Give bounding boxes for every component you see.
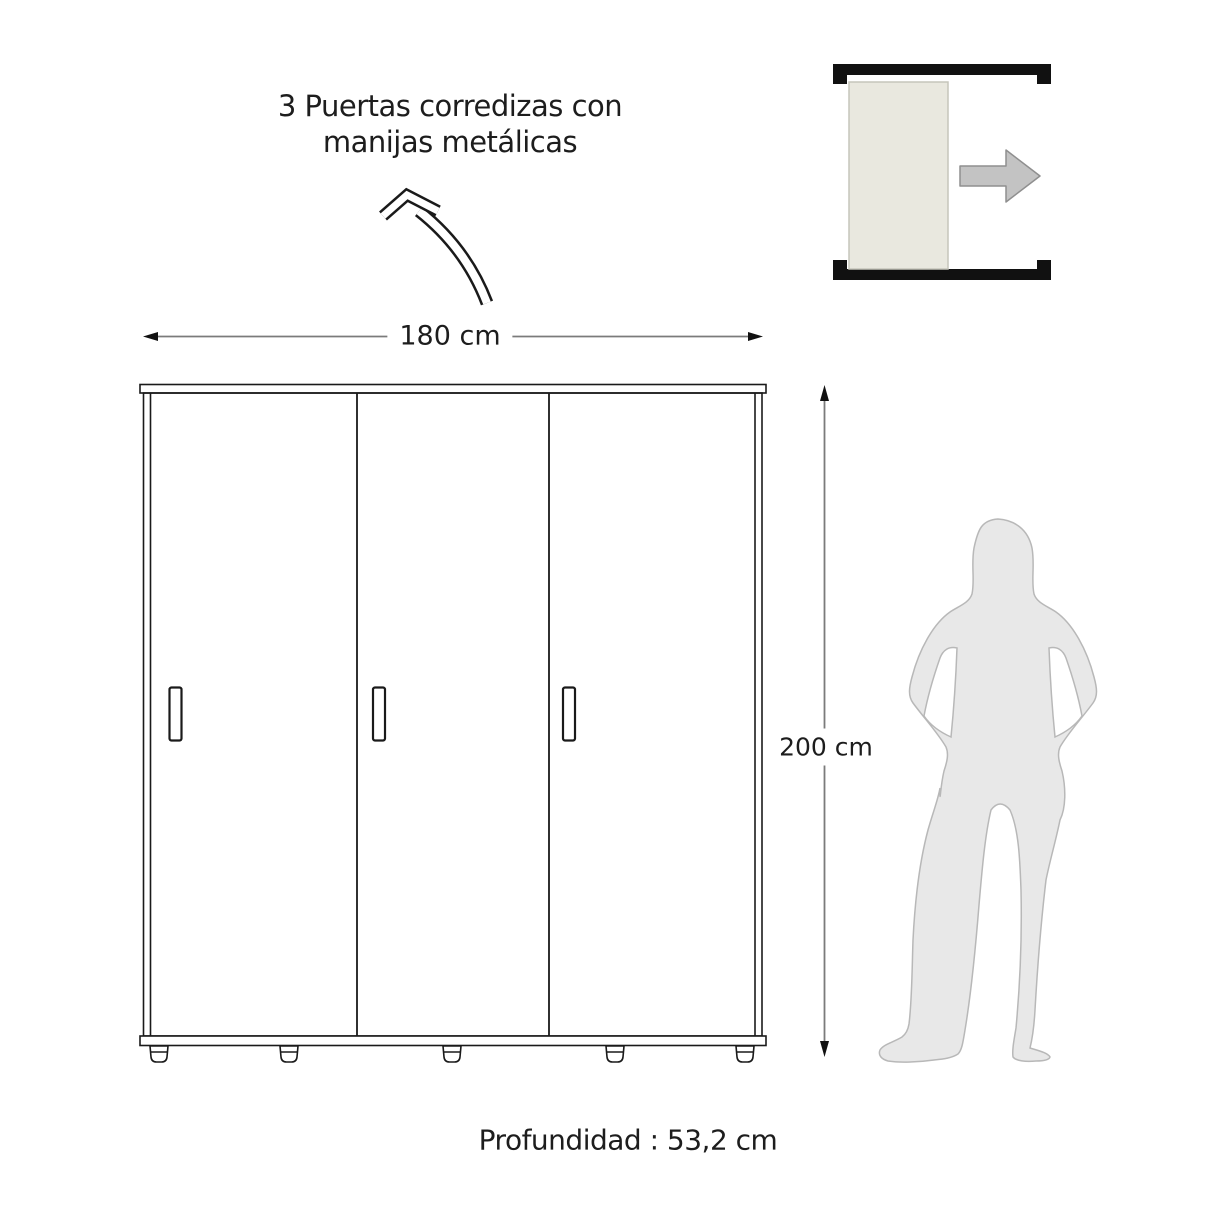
top-rail-bracket: [833, 64, 1051, 84]
height-dimension-label: 200 cm: [771, 729, 881, 766]
feature-annotation-line1: 3 Puertas corredizas con: [278, 88, 622, 124]
diagram-artwork: [0, 0, 1214, 1214]
slide-right-arrow-icon: [960, 150, 1040, 202]
depth-dimension-label: Profundidad : 53,2 cm: [479, 1124, 778, 1157]
wardrobe-foot-3: [443, 1046, 461, 1062]
arrowhead-up: [820, 385, 829, 401]
wardrobe-foot-5: [736, 1046, 754, 1062]
wardrobe-foot-2: [280, 1046, 298, 1062]
arrowhead-left: [143, 332, 158, 341]
height-dimension: [820, 385, 829, 1057]
wardrobe-body-outline: [144, 393, 763, 1036]
person-silhouette: [879, 519, 1096, 1062]
feature-annotation: 3 Puertas corredizas con manijas metálic…: [278, 88, 622, 161]
door-handle-3: [563, 688, 575, 741]
width-dimension-label: 180 cm: [387, 321, 512, 352]
wardrobe-drawing: [140, 385, 766, 1063]
curved-arrow-icon: [383, 195, 487, 303]
arrowhead-down: [820, 1041, 829, 1057]
slide-direction-diagram: [833, 64, 1051, 280]
wardrobe-foot-4: [606, 1046, 624, 1062]
wardrobe-top-panel: [140, 385, 766, 394]
door-handle-1: [170, 688, 182, 741]
wardrobe-foot-1: [150, 1046, 168, 1062]
feature-annotation-line2: manijas metálicas: [278, 124, 622, 160]
product-dimension-diagram: 3 Puertas corredizas con manijas metálic…: [0, 0, 1214, 1214]
sliding-door-panel: [849, 82, 948, 269]
arrowhead-right: [748, 332, 763, 341]
door-handle-2: [373, 688, 385, 741]
wardrobe-base-panel: [140, 1036, 766, 1046]
